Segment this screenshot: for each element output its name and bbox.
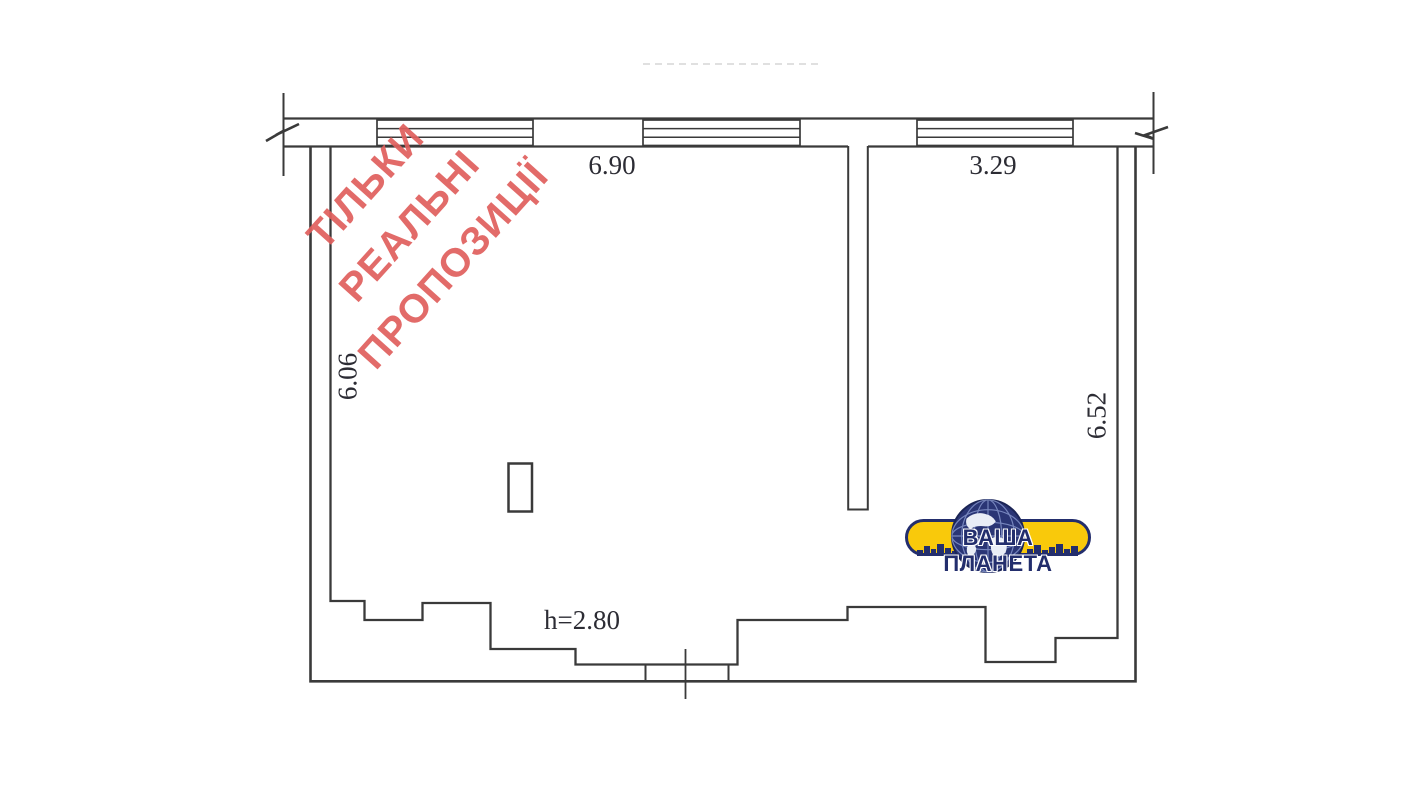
window-3 (917, 120, 1073, 146)
right-break-line (1135, 92, 1168, 174)
pillar (509, 464, 533, 512)
bottom-door-marks (646, 649, 729, 699)
outer-wall (311, 146, 1136, 681)
agency-logo: ВАША ПЛАНЕТА (905, 517, 1091, 557)
dimension-left: 6.06 (333, 332, 364, 422)
floorplan-drawing (0, 0, 1422, 800)
floorplan-canvas: ТІЛЬКИ РЕАЛЬНІ ПРОПОЗИЦІЇ 6.90 3.29 6.06… (0, 0, 1422, 800)
dimension-top-left: 6.90 (567, 150, 657, 181)
window-1 (377, 120, 533, 146)
logo-text: ВАША ПЛАНЕТА (905, 525, 1091, 577)
partition-wall (848, 145, 868, 510)
window-2 (643, 120, 800, 146)
dimension-right: 6.52 (1082, 371, 1113, 461)
dimension-top-right: 3.29 (948, 150, 1038, 181)
inner-wall-outline (331, 146, 1118, 665)
ceiling-height-note: h=2.80 (527, 605, 637, 636)
left-break-line (266, 93, 299, 176)
top-wall (283, 119, 1153, 147)
